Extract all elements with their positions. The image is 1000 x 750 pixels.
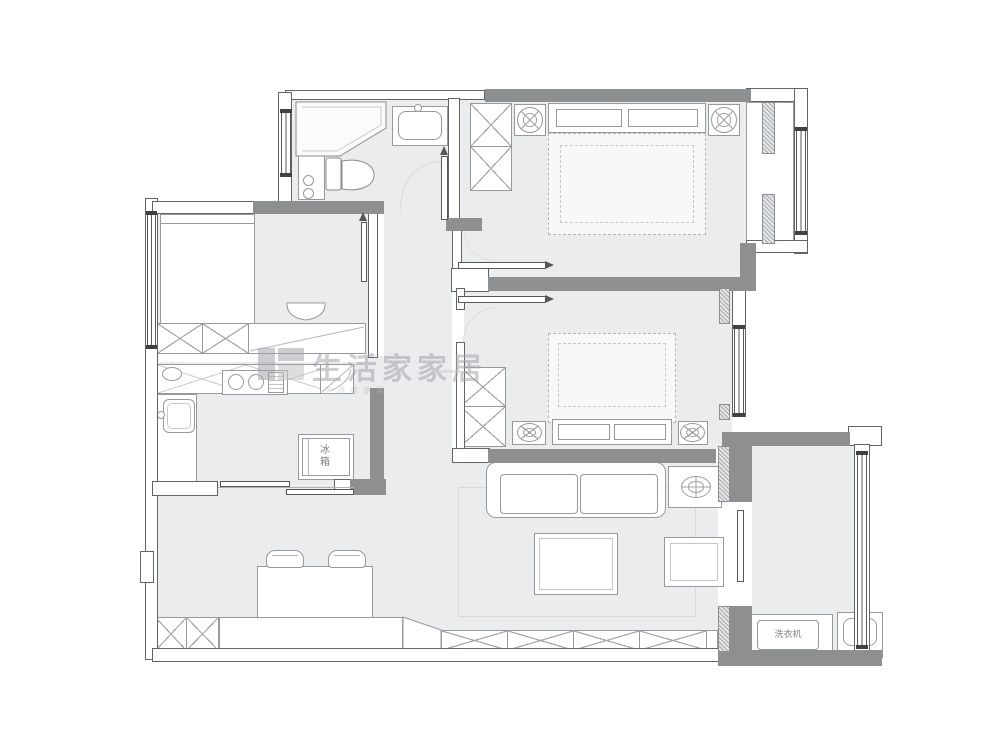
- desk-chair: [287, 303, 325, 320]
- wall-balcony-corner: [848, 426, 882, 446]
- wall-hatch-midroom-upper: [719, 288, 730, 324]
- slide-arrow-icon: [440, 146, 448, 155]
- sliding-door-middle-bedroom: [458, 296, 546, 303]
- wall-left-bedroom-right: [368, 212, 378, 358]
- door-swing-arc: [400, 161, 443, 212]
- sliding-door-top-bedroom: [458, 262, 546, 269]
- wall-cap-bath-door: [446, 218, 482, 231]
- wall-kitchen-right: [370, 388, 384, 482]
- slide-arrow-icon: [359, 212, 367, 221]
- watermark-brand-small: 生活家家居: [324, 385, 389, 396]
- wall-hatch-midroom-lower: [719, 404, 730, 420]
- wall-bay-connector: [740, 243, 756, 291]
- wall-hatch-balcony-upper: [718, 446, 730, 502]
- bench-taper: [403, 617, 441, 651]
- floor-plan: 冰箱 洗衣机: [0, 0, 1000, 750]
- wall-balcony-divider-lower: [730, 606, 752, 652]
- window-bathroom: [281, 110, 291, 176]
- watermark-logo-icon: [258, 348, 275, 380]
- window-middle-bedroom: [734, 326, 744, 416]
- window-balcony: [857, 452, 867, 648]
- window-bay: [796, 128, 806, 234]
- wall-balcony-top: [722, 432, 850, 446]
- wall-top-bedroom-top: [485, 89, 751, 102]
- sliding-door-kitchen-b: [286, 489, 354, 495]
- wall-balcony-divider-upper: [730, 446, 752, 502]
- watermark-logo-icon: [278, 365, 304, 380]
- wall-bathroom-right: [448, 98, 460, 224]
- wall-balcony-bottom: [718, 650, 882, 666]
- watermark-brand-text: 生活家家居: [312, 344, 487, 388]
- sliding-door-balcony: [737, 510, 744, 582]
- wall-living-top-block: [452, 448, 490, 463]
- slide-arrow-icon: [545, 261, 554, 269]
- wall-cap-kitchen-door: [350, 479, 386, 495]
- watermark-logo-icon: [278, 348, 304, 361]
- shower-stall: [296, 102, 386, 156]
- sliding-door-left-bedroom: [361, 222, 367, 282]
- kitchen-door-track: [218, 487, 354, 488]
- wall-kitchen-bottom-left: [152, 481, 218, 496]
- door-swing-arc: [464, 231, 494, 261]
- door-swing-arc: [463, 307, 495, 343]
- wall-left-jog: [140, 551, 154, 583]
- wall-lintel-left-bedroom: [152, 201, 255, 214]
- sliding-door-bathroom: [441, 156, 448, 220]
- slide-arrow-icon: [545, 295, 554, 303]
- toilet-tank: [326, 158, 341, 190]
- wall-hatch-bay-lower: [762, 194, 775, 244]
- window-left-bedroom: [147, 212, 156, 348]
- watermark-fragment: [432, 370, 460, 373]
- wall-living-bottom: [152, 648, 720, 662]
- wall-hatch-bay-upper: [762, 102, 775, 154]
- wall-hatch-balcony-lower: [718, 606, 730, 652]
- wall-living-top: [488, 449, 716, 463]
- wall-bedrooms-divider: [488, 277, 752, 291]
- sliding-door-kitchen-a: [220, 481, 290, 487]
- toilet-bowl: [342, 160, 374, 190]
